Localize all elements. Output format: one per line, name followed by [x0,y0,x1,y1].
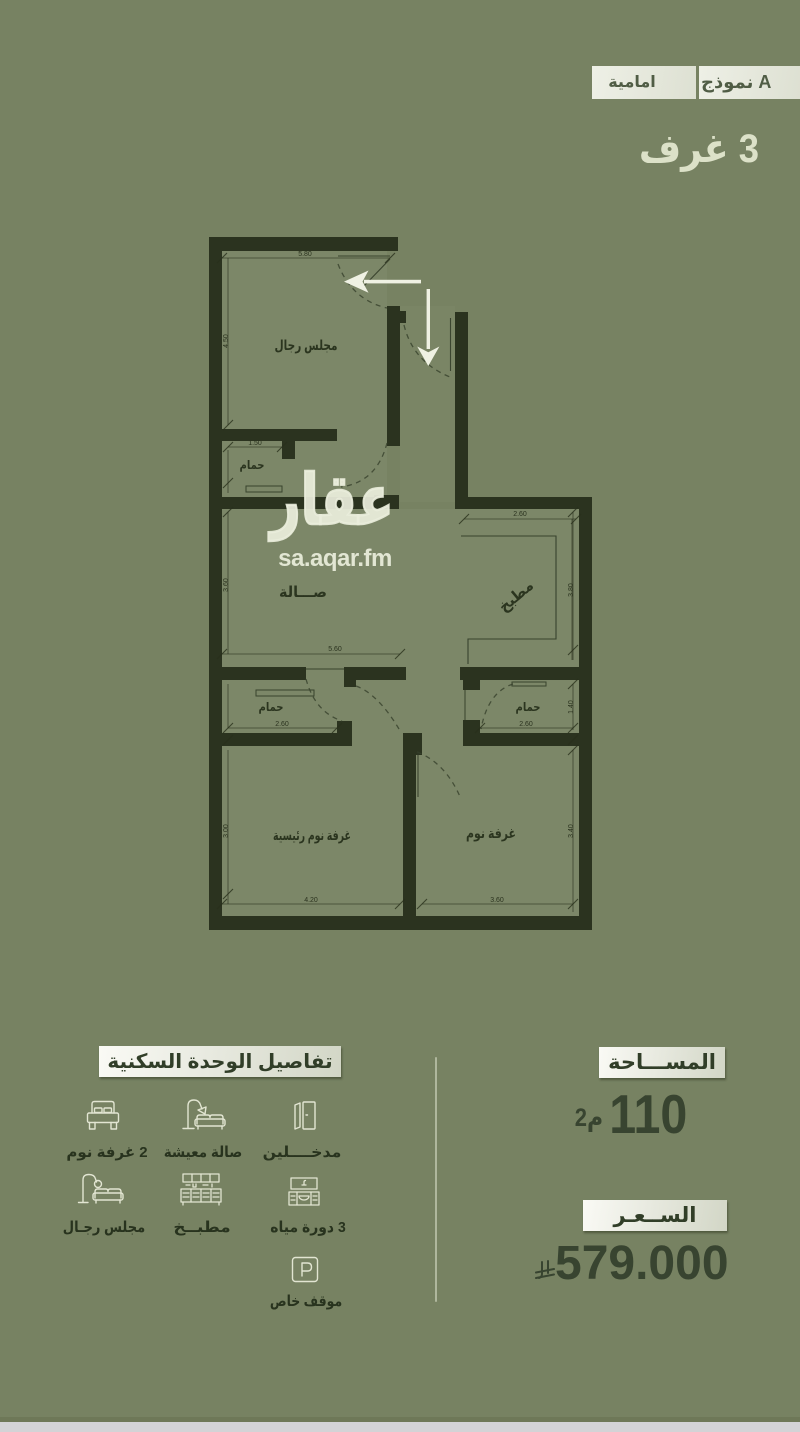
svg-text:3.40: 3.40 [568,824,575,838]
svg-text:2.60: 2.60 [513,511,527,518]
svg-text:مجلس رجال: مجلس رجال [275,337,338,353]
svg-text:عقار: عقار [268,462,394,541]
svg-text:حمام: حمام [516,700,541,715]
svg-text:5.60: 5.60 [328,646,342,653]
svg-text:3.60: 3.60 [223,578,230,592]
svg-text:5.80: 5.80 [298,251,312,258]
svg-text:2.60: 2.60 [275,721,289,728]
svg-text:sa.aqar.fm: sa.aqar.fm [278,545,392,572]
svg-text:3.80: 3.80 [568,583,575,597]
svg-text:2.60: 2.60 [519,721,533,728]
svg-text:حمام: حمام [259,700,284,715]
svg-text:3.60: 3.60 [490,897,504,904]
svg-text:صـــالة: صـــالة [279,584,327,601]
svg-text:غرفة نوم: غرفة نوم [466,825,516,842]
svg-text:4.50: 4.50 [223,334,230,348]
svg-text:1.40: 1.40 [568,700,575,714]
svg-text:3.00: 3.00 [223,824,230,838]
svg-text:4.20: 4.20 [304,897,318,904]
svg-text:غرفة نوم رئيسية: غرفة نوم رئيسية [273,827,351,844]
